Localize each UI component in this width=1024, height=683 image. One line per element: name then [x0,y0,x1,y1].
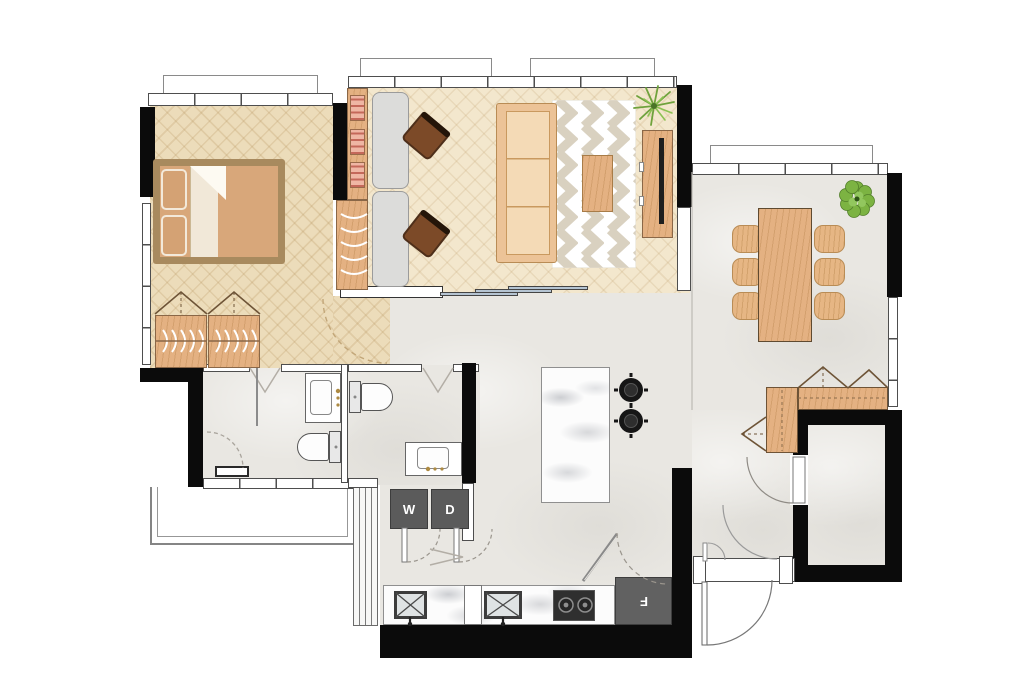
cooktop-burners [559,598,592,612]
bar-stool [614,373,648,407]
lineart-overlay [0,0,1024,683]
door-arc-entry-inner [703,505,777,561]
door-arc-bathroom [207,432,243,468]
fridge-door-swing [583,533,668,584]
door-arc-washer [402,528,440,562]
sideboard-door-symbol [742,367,888,451]
door-arc-main-entrance [702,580,772,645]
wardrobe-bifold-symbol [155,292,260,314]
door-arc-storeroom [747,457,805,503]
floor-plan: F W D [0,0,1024,683]
leafy-plant [840,181,875,218]
shelf-decor-arcs [341,214,367,274]
sink-details [396,593,520,626]
faucet-fittings [335,389,444,471]
hanger-symbols [156,330,259,352]
spiky-plant [634,86,674,125]
bar-stool [614,404,648,438]
open-door-symbol [250,368,463,565]
door-arc-bedroom [323,299,387,363]
